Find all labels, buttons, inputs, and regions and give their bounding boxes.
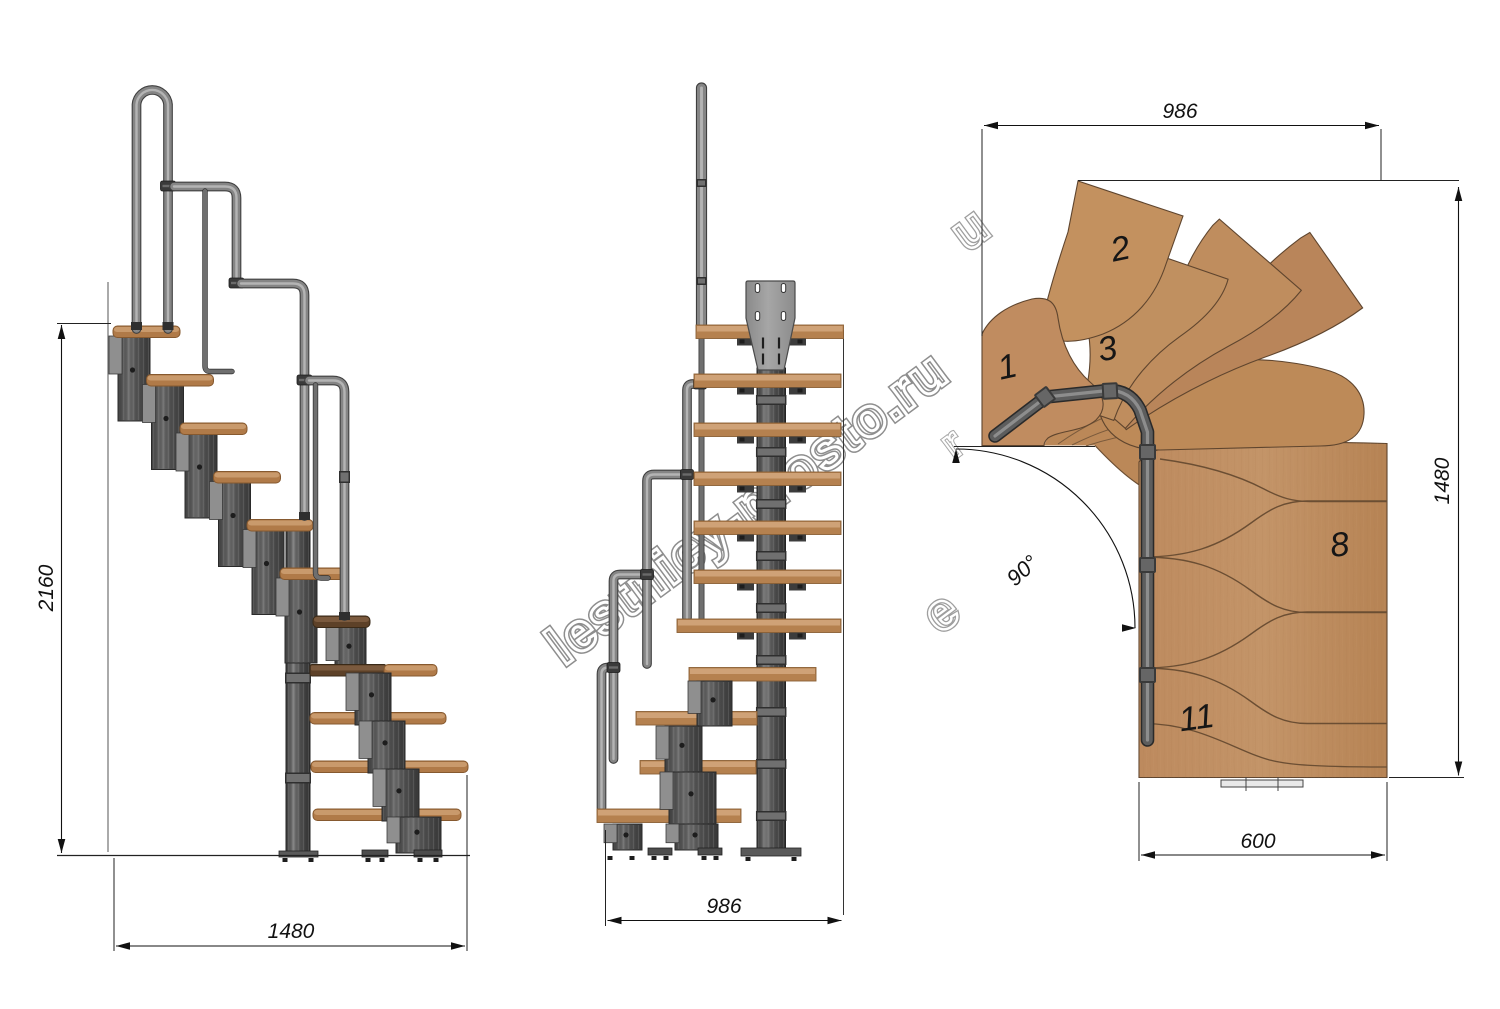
svg-text:600: 600 (1240, 830, 1275, 853)
svg-text:1480: 1480 (268, 920, 315, 943)
svg-text:986: 986 (1162, 100, 1197, 123)
svg-text:2160: 2160 (35, 564, 58, 612)
svg-text:986: 986 (706, 895, 741, 918)
svg-text:1480: 1480 (1431, 457, 1454, 504)
svg-text:11: 11 (1176, 697, 1216, 740)
